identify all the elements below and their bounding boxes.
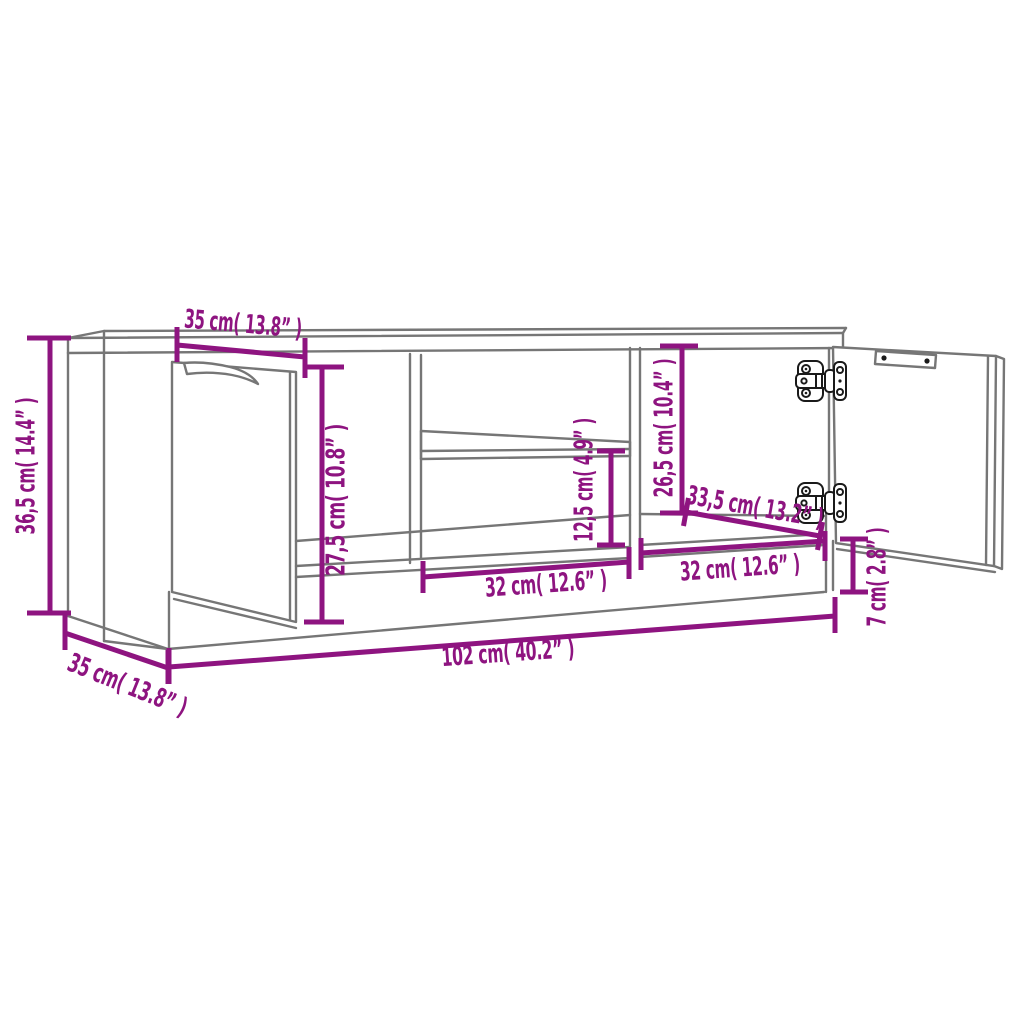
dim-label-overall-width: 102 cm( 40.2” )	[441, 634, 576, 673]
dim-middle-compartment-width: 32 cm( 12.6” )	[423, 547, 629, 604]
hinge-pin-dot	[838, 501, 841, 504]
dimension-annotations: 36,5 cm( 14.4” ) 35 cm( 13.8” ) 27,5 cm(…	[12, 304, 893, 723]
dim-label-door-height: 27,5 cm( 10.8” )	[322, 424, 352, 576]
door-hinge-top-icon	[796, 361, 846, 401]
right-door-panel	[833, 347, 996, 566]
hinge-screw-dot	[805, 368, 808, 371]
dim-label-right-compartment-width: 32 cm( 12.6” )	[679, 549, 801, 587]
dim-label-overall-height: 36,5 cm( 14.4” )	[12, 398, 42, 535]
hinge-screw	[837, 367, 843, 373]
left-door-panel	[172, 362, 296, 622]
mounting-plate-screw-left	[881, 355, 886, 360]
dim-shelf-clearance: 12,5 cm( 4.9” )	[570, 418, 626, 545]
top-board-bottom-edge	[68, 348, 843, 353]
hinge-screw-dot	[805, 490, 808, 493]
top-board-right-cap	[843, 328, 846, 348]
hinge-screw	[837, 389, 843, 395]
left-panel-bottom-edge	[68, 616, 168, 649]
hinge-screw-dot	[805, 392, 808, 395]
hinge-arm-screw	[801, 378, 806, 383]
mounting-plate-screw-right	[924, 358, 929, 363]
dim-label-plinth-height: 7 cm( 2.8” )	[863, 528, 893, 627]
dim-overall-height: 36,5 cm( 14.4” )	[12, 338, 72, 613]
dim-door-height: 27,5 cm( 10.8” )	[304, 367, 352, 622]
cabinet-left-side-panel	[68, 332, 168, 649]
hinge-screw	[837, 511, 843, 517]
cabinet-left-door	[172, 362, 296, 622]
dim-line	[597, 451, 625, 545]
dim-label-top-depth: 35 cm( 13.8” )	[183, 304, 303, 344]
hinge-screw	[837, 489, 843, 495]
dim-label-bottom-depth: 35 cm( 13.8” )	[63, 648, 191, 723]
dim-label-shelf-clearance: 12,5 cm( 4.9” )	[570, 418, 600, 542]
hinge-pin-dot	[838, 379, 841, 382]
dim-label-inner-height: 26,5 cm( 10.4” )	[650, 359, 680, 498]
dimension-diagram: 36,5 cm( 14.4” ) 35 cm( 13.8” ) 27,5 cm(…	[0, 0, 1024, 1024]
diagram-canvas: 36,5 cm( 14.4” ) 35 cm( 13.8” ) 27,5 cm(…	[0, 0, 1024, 1024]
